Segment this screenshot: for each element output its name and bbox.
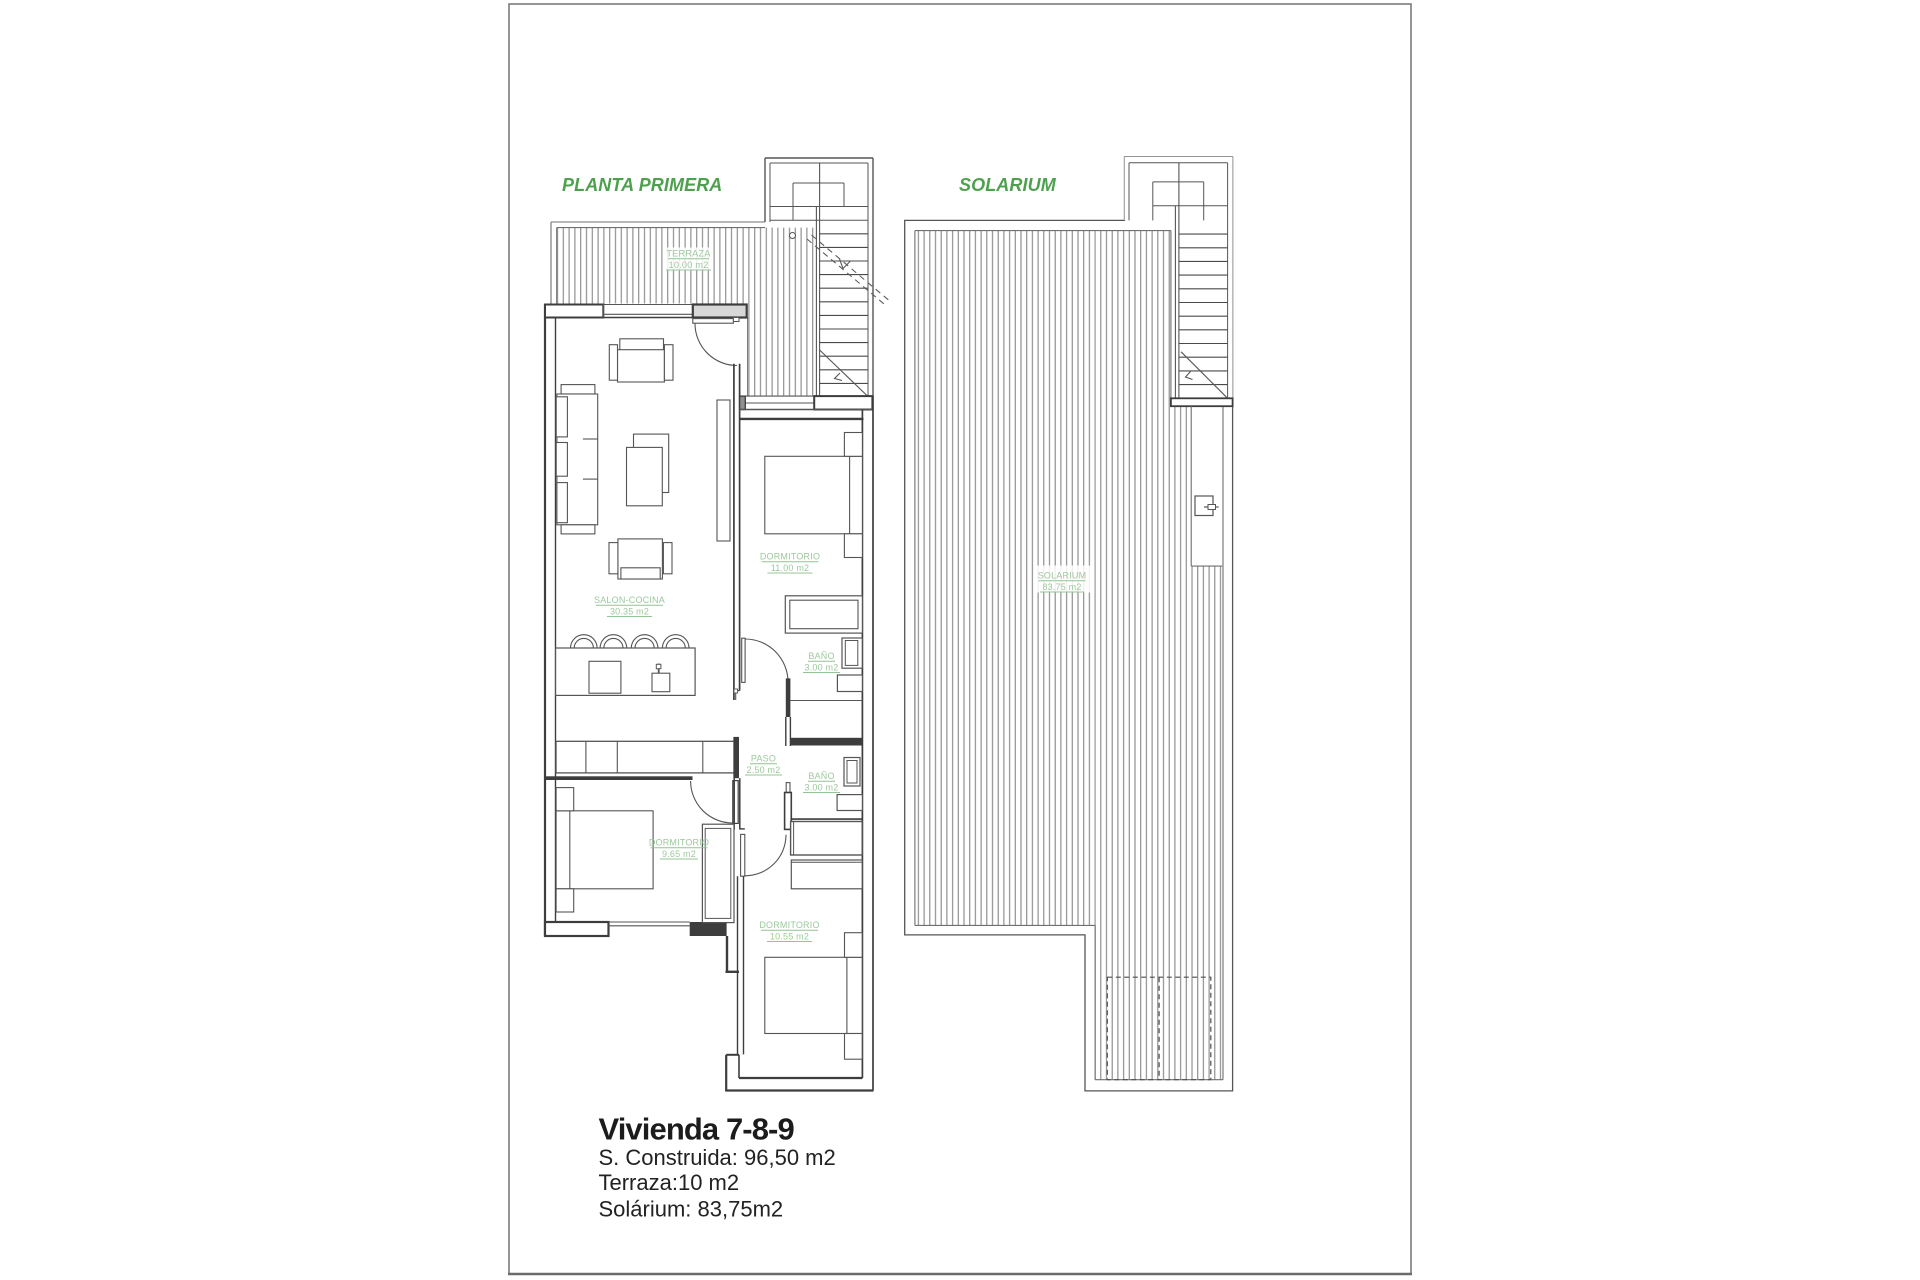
- svg-text:3.00 m2: 3.00 m2: [805, 782, 839, 792]
- svg-text:DORMITORIO: DORMITORIO: [759, 920, 819, 930]
- svg-text:PLANTA PRIMERA: PLANTA PRIMERA: [562, 175, 722, 195]
- svg-text:30.35 m2: 30.35 m2: [610, 606, 649, 616]
- svg-text:9.65 m2: 9.65 m2: [662, 849, 696, 859]
- svg-text:BAÑO: BAÑO: [808, 651, 834, 661]
- svg-text:BAÑO: BAÑO: [808, 771, 834, 781]
- svg-text:DORMITORIO: DORMITORIO: [760, 552, 820, 562]
- svg-text:Terraza:10 m2: Terraza:10 m2: [599, 1170, 740, 1195]
- svg-text:SALON-COCINA: SALON-COCINA: [594, 595, 665, 605]
- svg-text:10.00 m2: 10.00 m2: [669, 260, 709, 270]
- svg-text:DORMITORIO: DORMITORIO: [649, 838, 709, 848]
- svg-text:TERRAZA: TERRAZA: [666, 249, 711, 259]
- svg-text:2.50 m2: 2.50 m2: [747, 765, 781, 775]
- svg-text:PASO: PASO: [751, 754, 776, 764]
- svg-text:S. Construida: 96,50 m2: S. Construida: 96,50 m2: [599, 1145, 836, 1170]
- svg-text:10.55 m2: 10.55 m2: [770, 931, 809, 941]
- svg-text:83.75 m2: 83.75 m2: [1042, 582, 1081, 592]
- svg-text:11.00 m2: 11.00 m2: [771, 563, 809, 573]
- svg-text:Solárium: 83,75m2: Solárium: 83,75m2: [599, 1197, 784, 1222]
- svg-text:Vivienda 7-8-9: Vivienda 7-8-9: [599, 1112, 795, 1147]
- svg-text:SOLARIUM: SOLARIUM: [1038, 571, 1087, 581]
- svg-text:3.00 m2: 3.00 m2: [805, 662, 839, 672]
- svg-text:SOLARIUM: SOLARIUM: [959, 175, 1057, 195]
